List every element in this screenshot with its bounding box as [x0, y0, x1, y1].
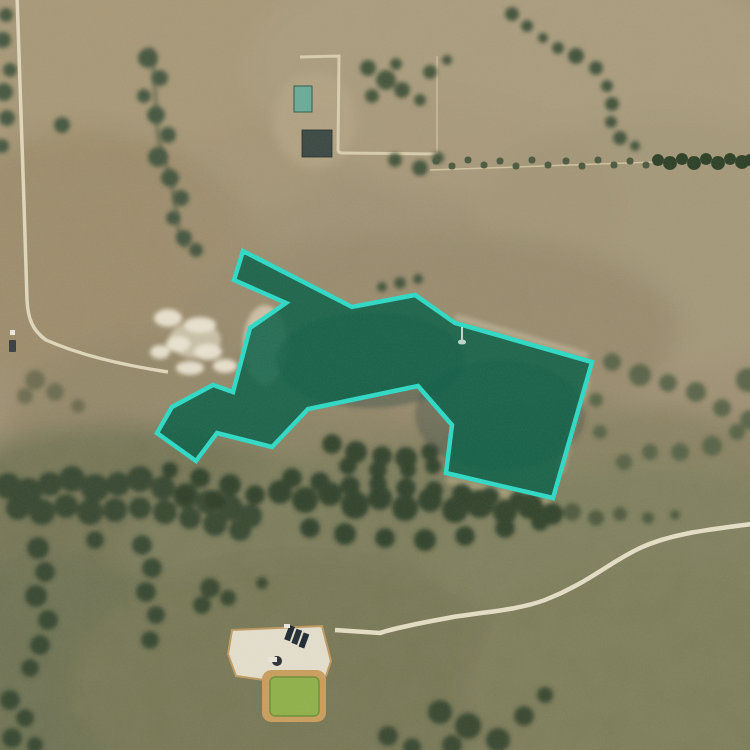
satellite-map-canvas[interactable]: [0, 0, 750, 750]
retention-pond: [262, 670, 326, 722]
vehicle: [9, 330, 16, 352]
outbuilding-dark-roof: [302, 130, 332, 157]
barn-green-roof: [294, 86, 312, 112]
map-viewport[interactable]: [0, 0, 750, 750]
dock-marker-head: [458, 340, 466, 345]
